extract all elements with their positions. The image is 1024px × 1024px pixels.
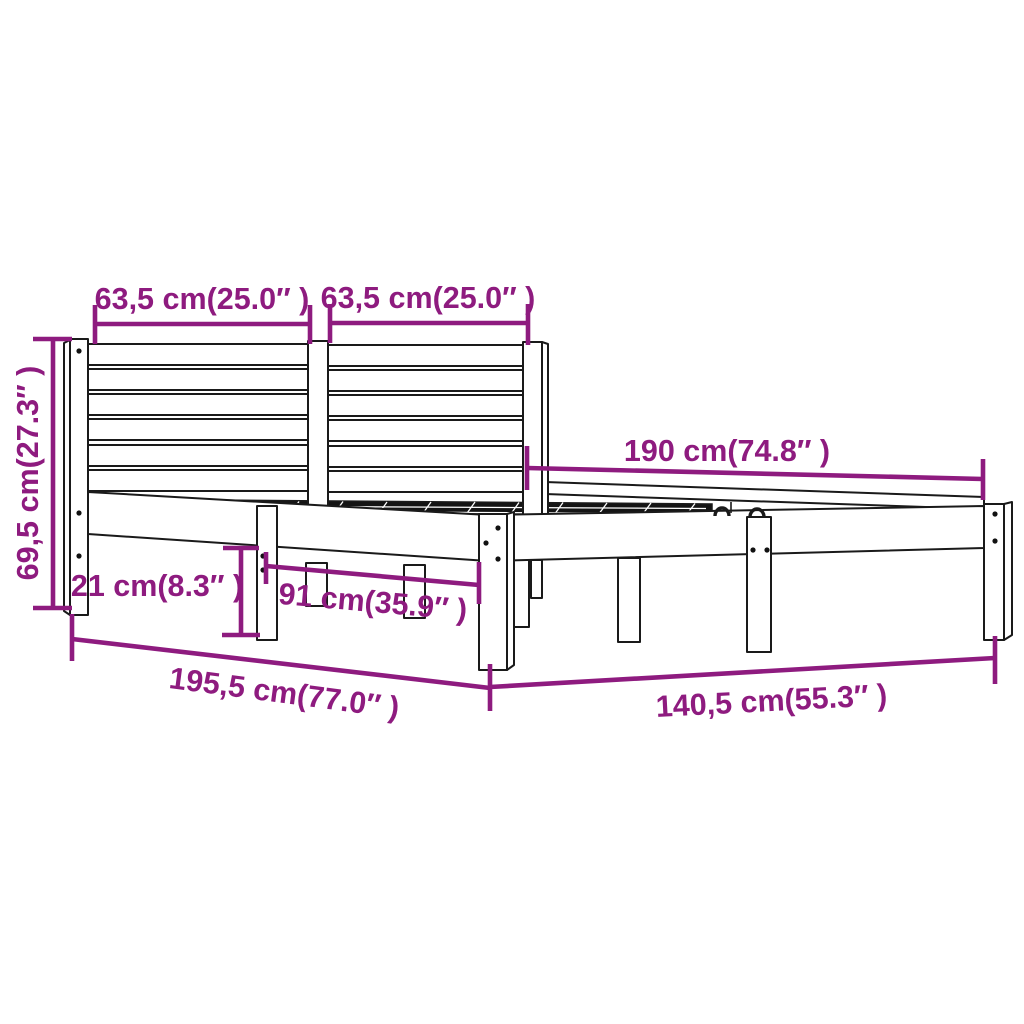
headboard-slat <box>328 370 523 391</box>
dimension-label: 195,5 cm(77.0″ ) <box>167 661 401 725</box>
dimension-headboard-height: 69,5 cm(27.3″ ) <box>11 339 72 608</box>
dimension-label: 91 cm(35.9″ ) <box>277 577 468 627</box>
headboard-slats-left <box>88 344 308 491</box>
dimension-diagram: 63,5 cm(25.0″ ) 63,5 cm(25.0″ ) 69,5 cm(… <box>0 0 1024 1024</box>
corner-leg-far-right <box>984 504 1004 640</box>
front-rail-right <box>488 506 984 561</box>
screw-dot <box>764 547 769 552</box>
headboard-slat <box>328 345 523 366</box>
background-leg <box>618 558 640 642</box>
headboard-slat <box>88 470 308 491</box>
headboard-slat <box>88 394 308 415</box>
headboard-slat <box>88 369 308 390</box>
headboard-slat <box>328 395 523 416</box>
corner-leg-near <box>479 514 507 670</box>
dimension-label: 63,5 cm(25.0″ ) <box>95 282 310 316</box>
headboard-right-post <box>523 342 542 520</box>
dimension-headboard-left-width: 63,5 cm(25.0″ ) <box>95 282 310 344</box>
support-leg-right <box>747 517 771 652</box>
diagram-canvas: 63,5 cm(25.0″ ) 63,5 cm(25.0″ ) 69,5 cm(… <box>0 0 1024 1024</box>
headboard-slat <box>88 445 308 466</box>
dimension-line <box>490 658 995 687</box>
screw-dot <box>483 540 488 545</box>
screw-dot <box>76 553 81 558</box>
dimension-headboard-right-width: 63,5 cm(25.0″ ) <box>321 281 536 345</box>
headboard-slat <box>88 419 308 440</box>
screw-dot <box>495 556 500 561</box>
headboard-right-post-side <box>542 342 548 520</box>
corner-leg-far-right-side <box>1004 502 1012 640</box>
dimension-label: 21 cm(8.3″ ) <box>71 569 243 603</box>
dimension-label: 190 cm(74.8″ ) <box>624 434 830 468</box>
background-leg <box>531 560 542 598</box>
headboard-slats-right <box>328 345 523 492</box>
screw-dot <box>992 538 997 543</box>
screw-dot <box>750 547 755 552</box>
screw-dot <box>495 525 500 530</box>
bed-frame-drawing <box>64 339 1012 670</box>
dimension-leg-height: 21 cm(8.3″ ) <box>71 548 260 635</box>
corner-leg-near-side <box>507 512 514 670</box>
headboard-slat <box>328 446 523 467</box>
dimension-label: 69,5 cm(27.3″ ) <box>11 366 45 581</box>
dimension-total-width: 140,5 cm(55.3″ ) <box>490 636 995 724</box>
headboard-slat <box>328 420 523 441</box>
screw-dot <box>992 511 997 516</box>
headboard-slat <box>328 471 523 492</box>
headboard-slat <box>88 344 308 365</box>
dimension-label: 140,5 cm(55.3″ ) <box>655 678 888 724</box>
dimension-line <box>527 468 983 479</box>
headboard-middle-post <box>308 341 328 522</box>
screw-dot <box>76 510 81 515</box>
dimension-label: 63,5 cm(25.0″ ) <box>321 281 536 315</box>
dimension-leg-spacing: 91 cm(35.9″ ) <box>266 552 479 627</box>
dimension-total-length: 195,5 cm(77.0″ ) <box>72 614 490 725</box>
screw-dot <box>76 348 81 353</box>
